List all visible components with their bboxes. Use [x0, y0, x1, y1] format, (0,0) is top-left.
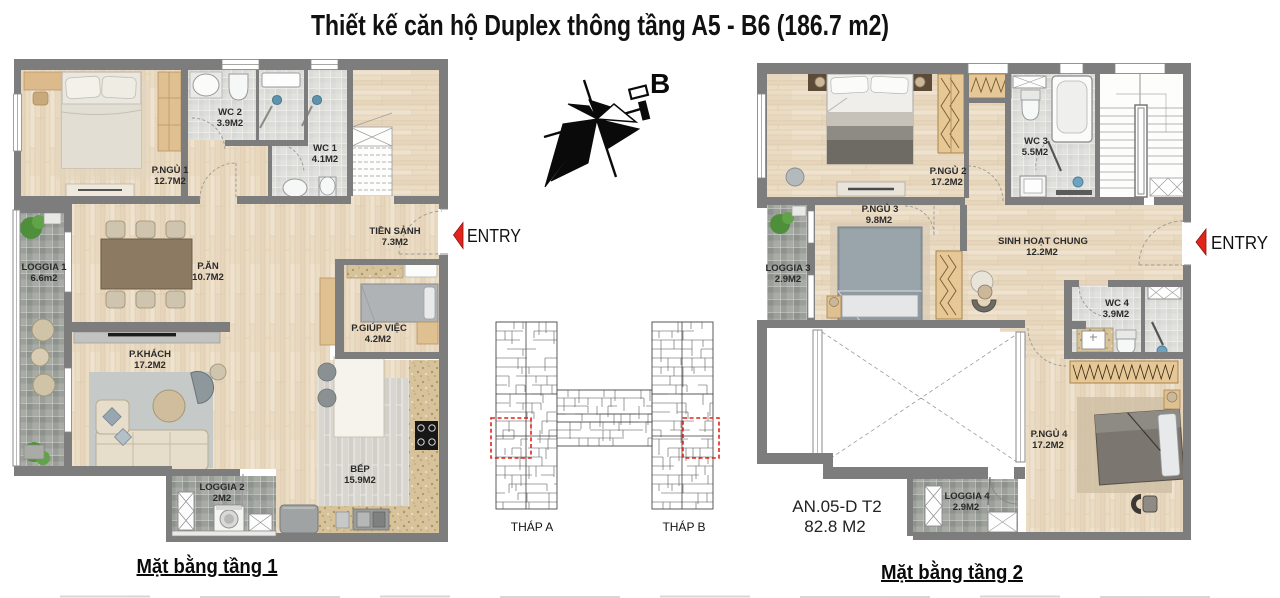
svg-text:17.2M2: 17.2M2: [134, 360, 166, 371]
svg-text:B: B: [650, 68, 670, 99]
svg-text:LOGGIA 2: LOGGIA 2: [199, 482, 244, 493]
svg-text:15.9M2: 15.9M2: [344, 475, 376, 486]
svg-text:2.9M2: 2.9M2: [775, 274, 801, 285]
svg-text:5.5M2: 5.5M2: [1022, 147, 1048, 158]
svg-text:10.7M2: 10.7M2: [192, 272, 224, 283]
svg-text:82.8 M2: 82.8 M2: [804, 517, 865, 536]
svg-text:P.ĂN: P.ĂN: [197, 261, 219, 272]
svg-text:P.NGỦ 2: P.NGỦ 2: [930, 165, 967, 177]
svg-text:THÁP B: THÁP B: [662, 519, 705, 534]
svg-text:P.NGỦ 3: P.NGỦ 3: [862, 203, 899, 215]
svg-text:12.2M2: 12.2M2: [1026, 247, 1058, 258]
svg-text:7.3M2: 7.3M2: [382, 237, 408, 248]
svg-text:Mặt bằng tầng 2: Mặt bằng tầng 2: [881, 560, 1023, 584]
svg-text:P.NGỦ 1: P.NGỦ 1: [152, 164, 190, 176]
svg-text:12.7M2: 12.7M2: [154, 176, 186, 187]
svg-text:ENTRY: ENTRY: [467, 226, 521, 246]
svg-text:4.1M2: 4.1M2: [312, 154, 338, 165]
svg-text:6.6m2: 6.6m2: [31, 273, 58, 284]
svg-text:WC 3: WC 3: [1024, 136, 1048, 147]
svg-text:9.8M2: 9.8M2: [866, 215, 892, 226]
svg-text:P.GIÚP VIỆC: P.GIÚP VIỆC: [351, 322, 407, 334]
svg-text:WC 2: WC 2: [218, 107, 242, 118]
svg-text:4.2M2: 4.2M2: [365, 334, 391, 345]
svg-text:ENTRY: ENTRY: [1211, 233, 1268, 253]
svg-text:Thiết kế căn hộ Duplex thông t: Thiết kế căn hộ Duplex thông tầng A5 - B…: [311, 10, 889, 42]
svg-text:THÁP A: THÁP A: [511, 519, 553, 534]
svg-text:2.9M2: 2.9M2: [953, 502, 979, 513]
svg-text:LOGGIA 1: LOGGIA 1: [21, 262, 67, 273]
svg-text:Mặt bằng tầng 1: Mặt bằng tầng 1: [137, 554, 278, 578]
svg-text:3.9M2: 3.9M2: [1103, 309, 1129, 320]
svg-text:AN.05-D T2: AN.05-D T2: [792, 497, 881, 516]
svg-text:P.NGỦ 4: P.NGỦ 4: [1031, 428, 1069, 440]
svg-text:LOGGIA 4: LOGGIA 4: [944, 491, 990, 502]
svg-text:TIỀN SẢNH: TIỀN SẢNH: [369, 225, 420, 237]
svg-text:2M2: 2M2: [213, 493, 231, 504]
svg-text:WC 4: WC 4: [1105, 298, 1129, 309]
svg-text:SINH HOẠT CHUNG: SINH HOẠT CHUNG: [998, 236, 1088, 247]
svg-text:WC 1: WC 1: [313, 143, 337, 154]
svg-text:LOGGIA 3: LOGGIA 3: [765, 263, 810, 274]
svg-text:P.KHÁCH: P.KHÁCH: [129, 349, 171, 360]
svg-text:BẾP: BẾP: [350, 464, 370, 475]
svg-text:17.2M2: 17.2M2: [1032, 440, 1064, 451]
svg-text:3.9M2: 3.9M2: [217, 118, 243, 129]
svg-text:17.2M2: 17.2M2: [931, 177, 963, 188]
